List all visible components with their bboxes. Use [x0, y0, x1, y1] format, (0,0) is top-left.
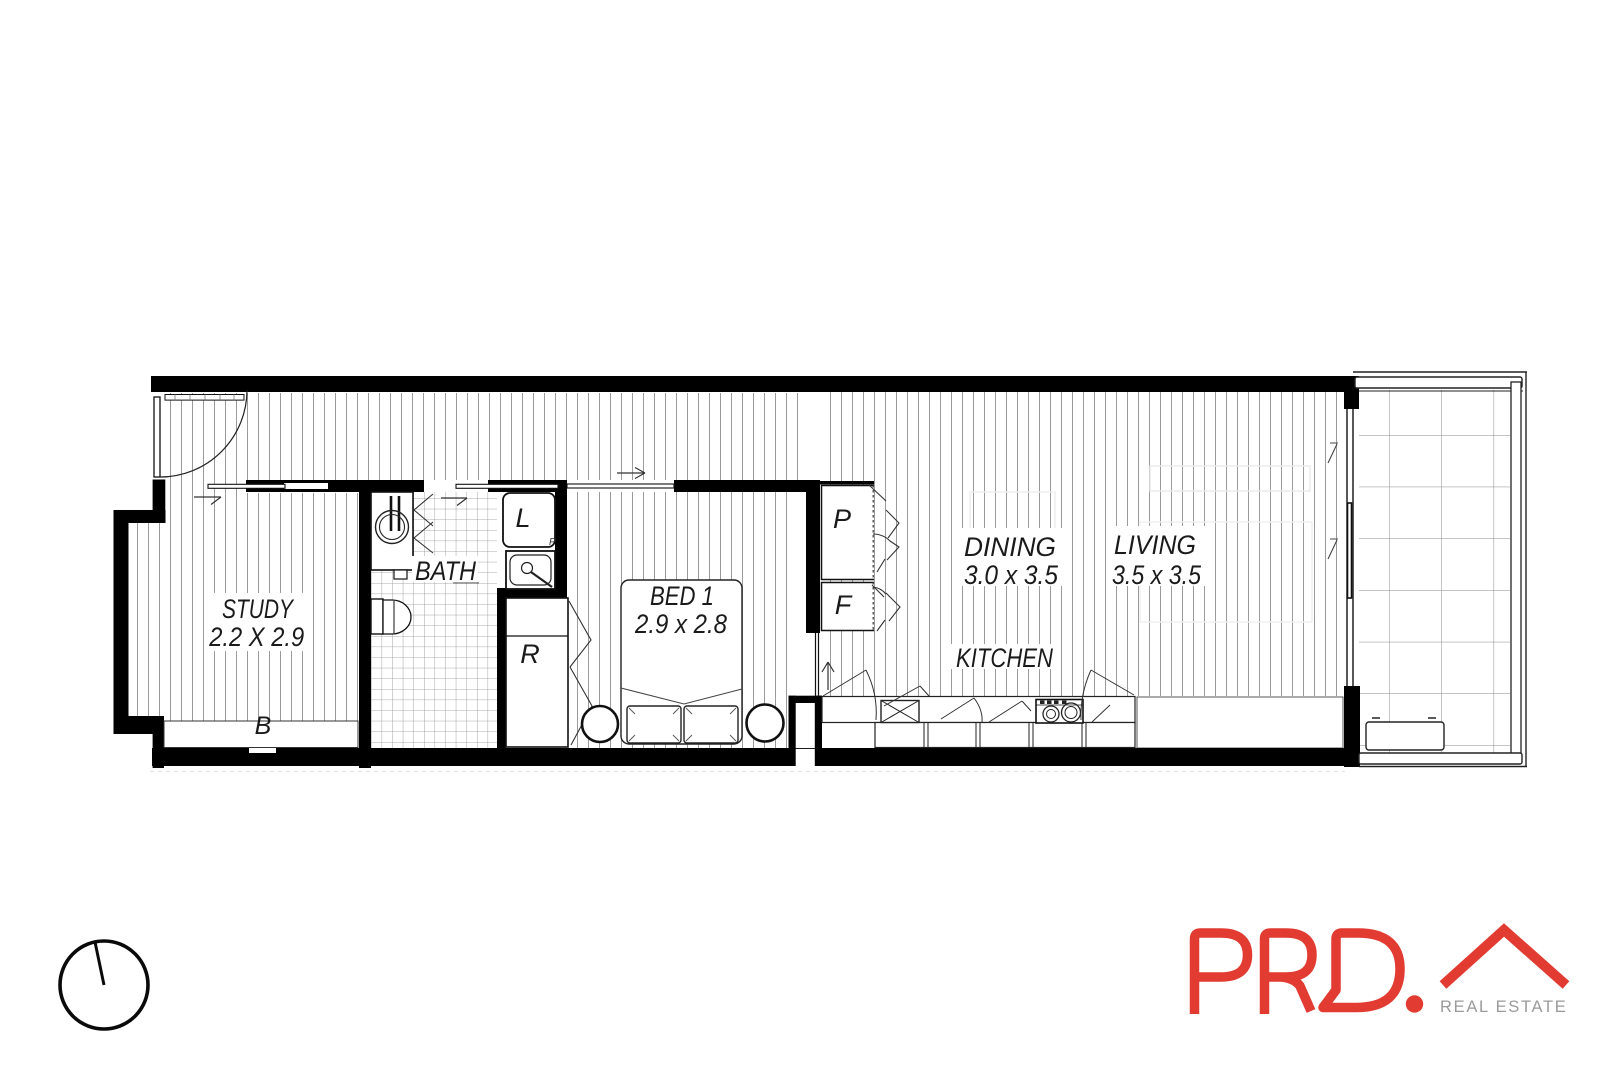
svg-text:DINING: DINING	[964, 532, 1056, 562]
svg-text:F: F	[835, 590, 853, 620]
svg-text:KITCHEN: KITCHEN	[956, 643, 1053, 673]
svg-text:BED 1: BED 1	[650, 581, 714, 611]
svg-text:REAL ESTATE: REAL ESTATE	[1440, 998, 1568, 1016]
svg-text:P: P	[549, 537, 556, 548]
svg-text:STUDY: STUDY	[222, 594, 295, 624]
svg-text:L: L	[515, 503, 530, 533]
svg-text:B: B	[255, 712, 272, 740]
svg-text:2.9 x 2.8: 2.9 x 2.8	[634, 609, 727, 639]
svg-text:2.2 X 2.9: 2.2 X 2.9	[208, 622, 304, 652]
svg-text:LIVING: LIVING	[1114, 530, 1196, 560]
svg-text:R: R	[520, 639, 540, 669]
svg-text:3.5 x 3.5: 3.5 x 3.5	[1112, 560, 1202, 590]
svg-text:3.0 x 3.5: 3.0 x 3.5	[964, 560, 1059, 590]
svg-text:P: P	[833, 504, 851, 534]
svg-text:BATH: BATH	[415, 556, 476, 586]
